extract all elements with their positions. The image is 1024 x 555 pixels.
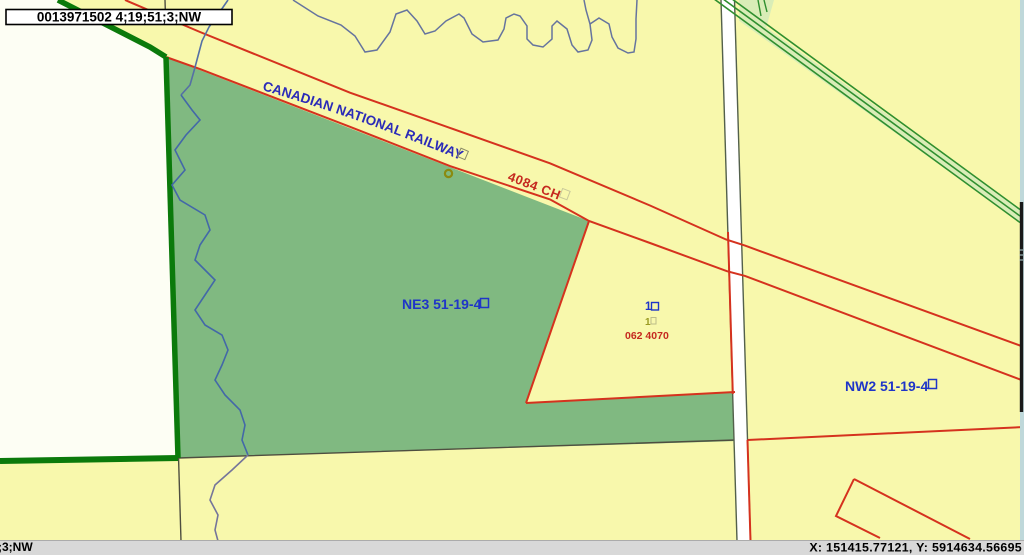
svg-text:NW2 51-19-4: NW2 51-19-4 (845, 378, 928, 394)
svg-text:062 4070: 062 4070 (625, 330, 669, 342)
svg-text:0013971502 4;19;51;3;NW: 0013971502 4;19;51;3;NW (37, 10, 202, 25)
svg-text:X: 151415.77121, Y: 5914634.56: X: 151415.77121, Y: 5914634.56695 (809, 541, 1022, 555)
svg-text:NE3 51-19-4: NE3 51-19-4 (402, 296, 482, 312)
svg-text:1: 1 (645, 317, 651, 328)
svg-text:;3;NW: ;3;NW (0, 540, 33, 554)
